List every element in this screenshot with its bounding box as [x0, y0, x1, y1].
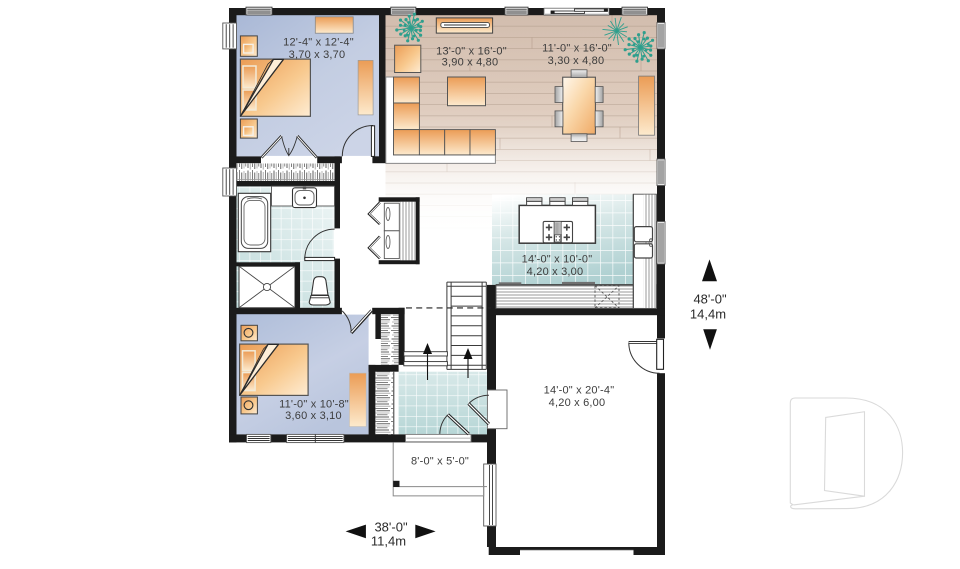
svg-text:11'-0" x 16'-0": 11'-0" x 16'-0": [542, 43, 612, 55]
svg-text:8'-0" x 5'-0": 8'-0" x 5'-0": [411, 456, 469, 468]
svg-text:48'-0": 48'-0": [693, 292, 727, 307]
svg-text:14,4m: 14,4m: [690, 307, 726, 322]
svg-text:4,20 x 6,00: 4,20 x 6,00: [549, 397, 606, 409]
svg-text:11,4m: 11,4m: [371, 534, 406, 549]
svg-text:14'-0" x 10'-0": 14'-0" x 10'-0": [522, 254, 593, 266]
svg-text:4,20 x 3,00: 4,20 x 3,00: [527, 266, 584, 278]
svg-text:14'-0" x 20'-4": 14'-0" x 20'-4": [544, 385, 615, 397]
svg-text:3,60 x 3,10: 3,60 x 3,10: [285, 410, 342, 422]
svg-text:3,90 x 4,80: 3,90 x 4,80: [442, 57, 499, 69]
svg-text:3,30 x 4,80: 3,30 x 4,80: [548, 55, 605, 67]
svg-text:12'-4" x 12'-4": 12'-4" x 12'-4": [283, 37, 354, 49]
svg-text:11'-0" x 10'-8": 11'-0" x 10'-8": [279, 399, 349, 411]
svg-text:38'-0": 38'-0": [374, 520, 408, 535]
svg-text:3,70 x 3,70: 3,70 x 3,70: [289, 49, 346, 61]
